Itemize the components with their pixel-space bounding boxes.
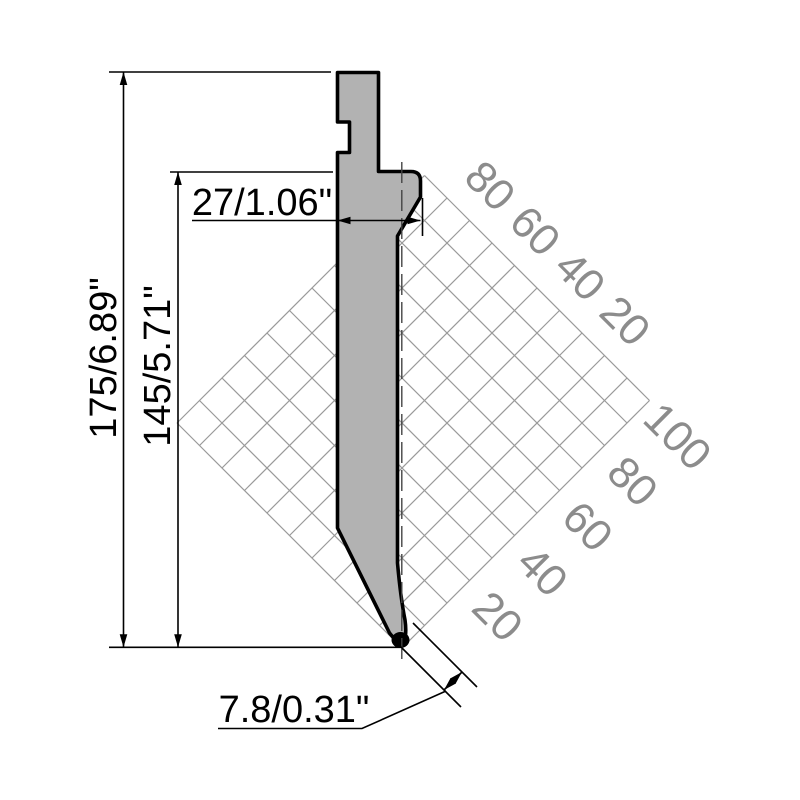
arrowhead-down [120,634,128,647]
dimension-tip-width: 7.8/0.31" [218,623,477,731]
grid-axis-label: 80 [455,152,524,221]
drawing-canvas: 8060402010080604020 175/6.89" 145/5.71" … [0,0,800,800]
total-height-label: 175/6.89" [83,277,125,438]
grid-axis-label: 80 [598,447,667,516]
grid-axis-label: 40 [508,537,577,606]
grid-axis-labels: 8060402010080604020 [455,152,720,652]
grid-line [200,198,448,446]
punch-tip-radius [392,632,410,648]
grid-axis-label: 60 [500,197,569,266]
tip-width-label: 7.8/0.31" [219,689,370,731]
grid-axis-label: 20 [590,287,659,356]
working-height-label: 145/5.71" [137,285,179,446]
grid-axis-label: 40 [545,242,614,311]
extension-line-2 [413,623,477,687]
grid-axis-label: 60 [553,492,622,561]
arrowhead-right [408,217,421,225]
shoulder-width-label: 27/1.06" [192,182,332,224]
punch-profile [338,73,421,647]
arrowhead-up [120,72,128,85]
grid-axis-label: 20 [463,582,532,651]
grid-line [290,288,538,536]
technical-drawing: 8060402010080604020 175/6.89" 145/5.71" … [0,0,800,800]
arrowhead-down [174,634,182,647]
arrowhead-up [174,172,182,185]
